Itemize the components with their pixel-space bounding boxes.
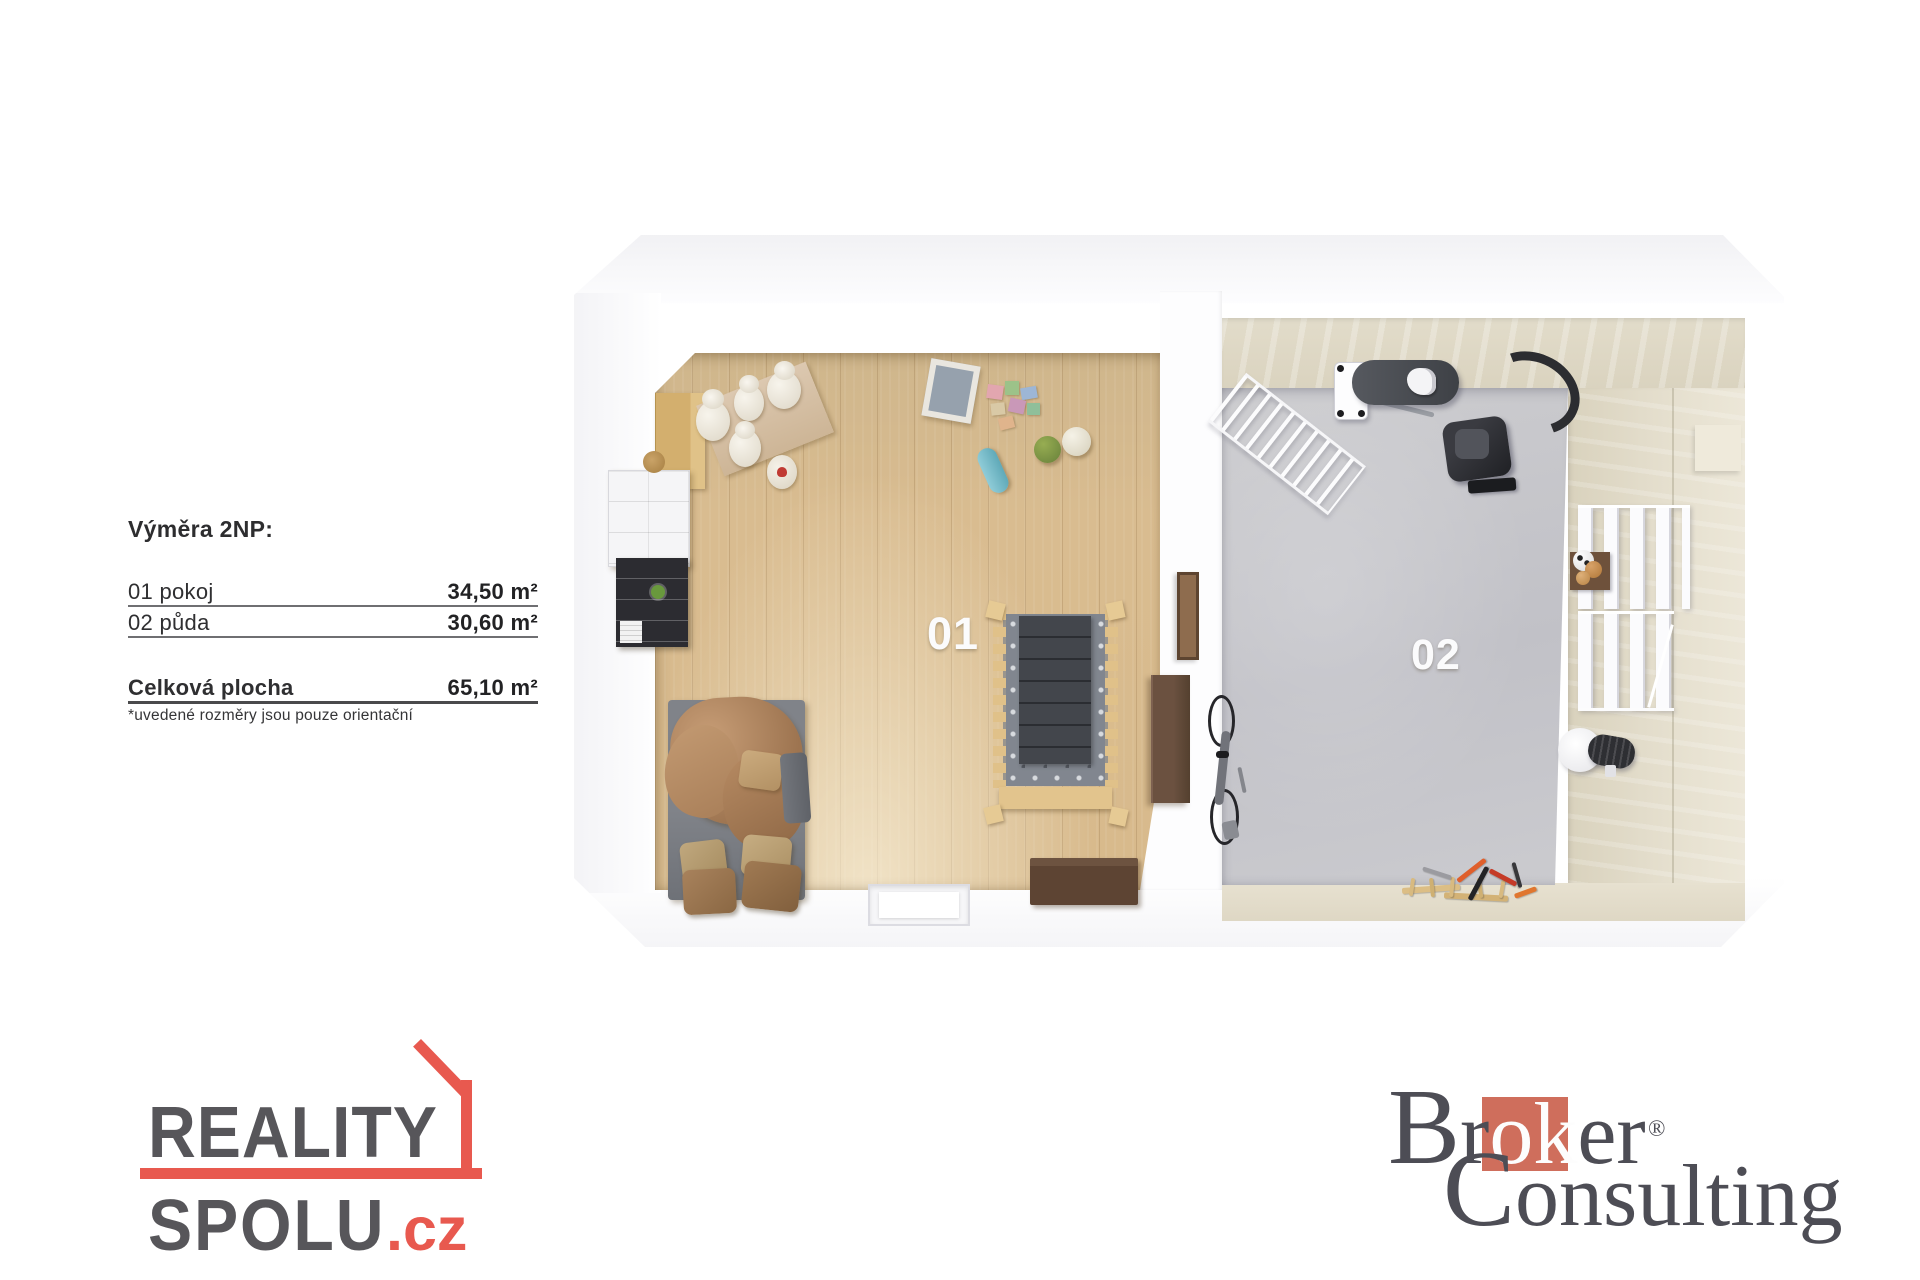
floor-plan: 01 02: [571, 233, 1790, 964]
wall-picture: [1177, 572, 1199, 660]
wall-ledge: [1695, 425, 1741, 471]
blanket: [780, 752, 812, 824]
area-row-label: 01 pokoj: [128, 579, 214, 605]
total-label: Celková plocha: [128, 675, 294, 701]
room-01-label: 01: [927, 608, 979, 660]
crib-rail: [1105, 610, 1118, 788]
teddy-bear-heart: [777, 467, 787, 477]
crib-rail: [993, 610, 1006, 788]
fan-stem: [1605, 765, 1616, 777]
teddy-bear-head: [735, 421, 755, 439]
room-02-label: 02: [1411, 631, 1461, 680]
crib-post: [1105, 600, 1125, 620]
orange-ball: [1576, 571, 1590, 585]
vacuum-bag: [1455, 429, 1489, 459]
hatch-opening: [879, 892, 959, 918]
area-row-puda: 02 půda 30,60 m²: [128, 611, 538, 638]
logo-text-cz: .cz: [386, 1194, 467, 1264]
ironing-board: [1352, 360, 1459, 405]
footnote: *uvedené rozměry jsou pouze orientační: [128, 707, 413, 725]
total-value: 65,10 m²: [448, 675, 538, 701]
plant: [651, 585, 665, 599]
pillow: [741, 860, 803, 913]
logo-text-consulting: Consulting: [1443, 1136, 1843, 1244]
pillow: [682, 868, 737, 916]
room-02-sloped-wall-top: [1222, 318, 1745, 388]
chest: [1030, 858, 1138, 905]
crib-post: [1108, 806, 1128, 826]
white-cabinet: [608, 470, 690, 567]
crib-footboard: [999, 787, 1112, 809]
area-row-value: 30,60 m²: [448, 610, 538, 636]
area-row-total: Celková plocha 65,10 m²: [128, 677, 538, 704]
picture-frame: [921, 358, 980, 424]
logo-text-spolu: SPOLU: [148, 1185, 385, 1267]
area-row-label: 02 půda: [128, 610, 210, 636]
books: [620, 621, 642, 643]
teddy-bear-head: [774, 361, 795, 380]
white-ball: [1062, 427, 1091, 456]
teddy-bear-head: [739, 375, 759, 393]
logo-roof-icon: [461, 1080, 472, 1179]
page-title: Výměra 2NP:: [128, 516, 273, 543]
logo-text-reality: REALITY: [148, 1092, 438, 1174]
dresser: [1151, 675, 1190, 803]
floor-hatch: [868, 884, 970, 926]
teddy-bear-head: [702, 389, 724, 409]
crib: [993, 610, 1118, 817]
straw-bear: [643, 451, 665, 473]
green-ball: [1034, 436, 1061, 463]
bicycle-seat: [1216, 751, 1229, 758]
tools: [1402, 866, 1550, 914]
area-row-pokoj: 01 pokoj 34,50 m²: [128, 580, 538, 607]
crib-mattress: [1019, 616, 1091, 764]
pillow: [738, 749, 785, 791]
logo-red-line: [140, 1168, 482, 1179]
area-row-value: 34,50 m²: [448, 579, 538, 605]
